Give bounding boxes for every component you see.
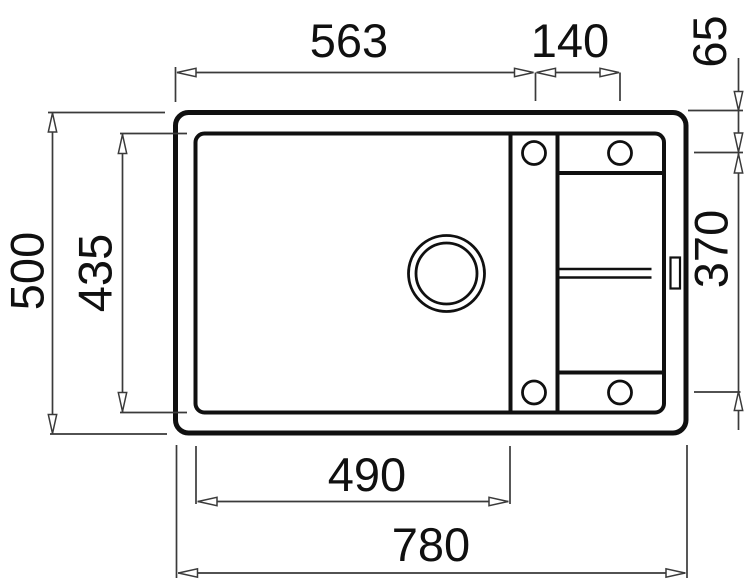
dim-140-label: 140: [531, 14, 609, 67]
tap-hole-top-left: [523, 142, 546, 165]
dim-435-arrow-bottom: [118, 393, 126, 412]
dim-563-arrow-right: [515, 68, 534, 76]
dim-65-arrow-top: [734, 92, 742, 111]
tap-hole-top-right: [609, 142, 632, 165]
dim-563: 563: [176, 14, 534, 102]
tap-hole-bottom-left: [523, 381, 546, 404]
sink-outline: [176, 113, 687, 434]
dim-65-label: 65: [683, 15, 736, 67]
dim-370: 370: [685, 153, 743, 431]
dim-370-label: 370: [685, 210, 738, 288]
dim-370-arrow-bottom: [734, 392, 742, 411]
dim-500-arrow-top: [48, 113, 56, 132]
drain-inner-circle: [416, 243, 477, 304]
dim-500-label: 500: [1, 232, 54, 310]
drain-outer-circle: [409, 236, 485, 312]
dim-490-label: 490: [328, 448, 406, 501]
dim-140-arrow-right: [600, 68, 619, 76]
dim-140-arrow-left: [537, 68, 556, 76]
dim-370-arrow-top: [734, 154, 742, 173]
dim-780: 780: [177, 445, 688, 578]
dim-490: 490: [196, 446, 510, 506]
dim-563-arrow-left: [177, 68, 196, 76]
dim-140: 140: [531, 14, 620, 101]
dim-65-arrow-bottom: [734, 133, 742, 152]
dim-780-label: 780: [392, 518, 470, 571]
dim-435-arrow-top: [118, 135, 126, 154]
sink-outer-rim: [176, 113, 687, 434]
dim-500-arrow-bottom: [48, 415, 56, 434]
dim-490-arrow-left: [198, 497, 217, 505]
dim-490-arrow-right: [489, 497, 508, 505]
dim-65: 65: [683, 15, 743, 152]
tap-hole-bottom-right: [609, 381, 632, 404]
dim-563-label: 563: [310, 14, 388, 67]
sink-dimension-drawing: 563 140 65 370: [0, 0, 755, 586]
technical-drawing-canvas: 563 140 65 370: [0, 0, 755, 586]
overflow-slot: [671, 258, 681, 289]
dim-780-arrow-right: [666, 569, 685, 577]
dim-435-label: 435: [69, 234, 122, 312]
dim-780-arrow-left: [179, 569, 198, 577]
dim-435: 435: [69, 134, 188, 413]
